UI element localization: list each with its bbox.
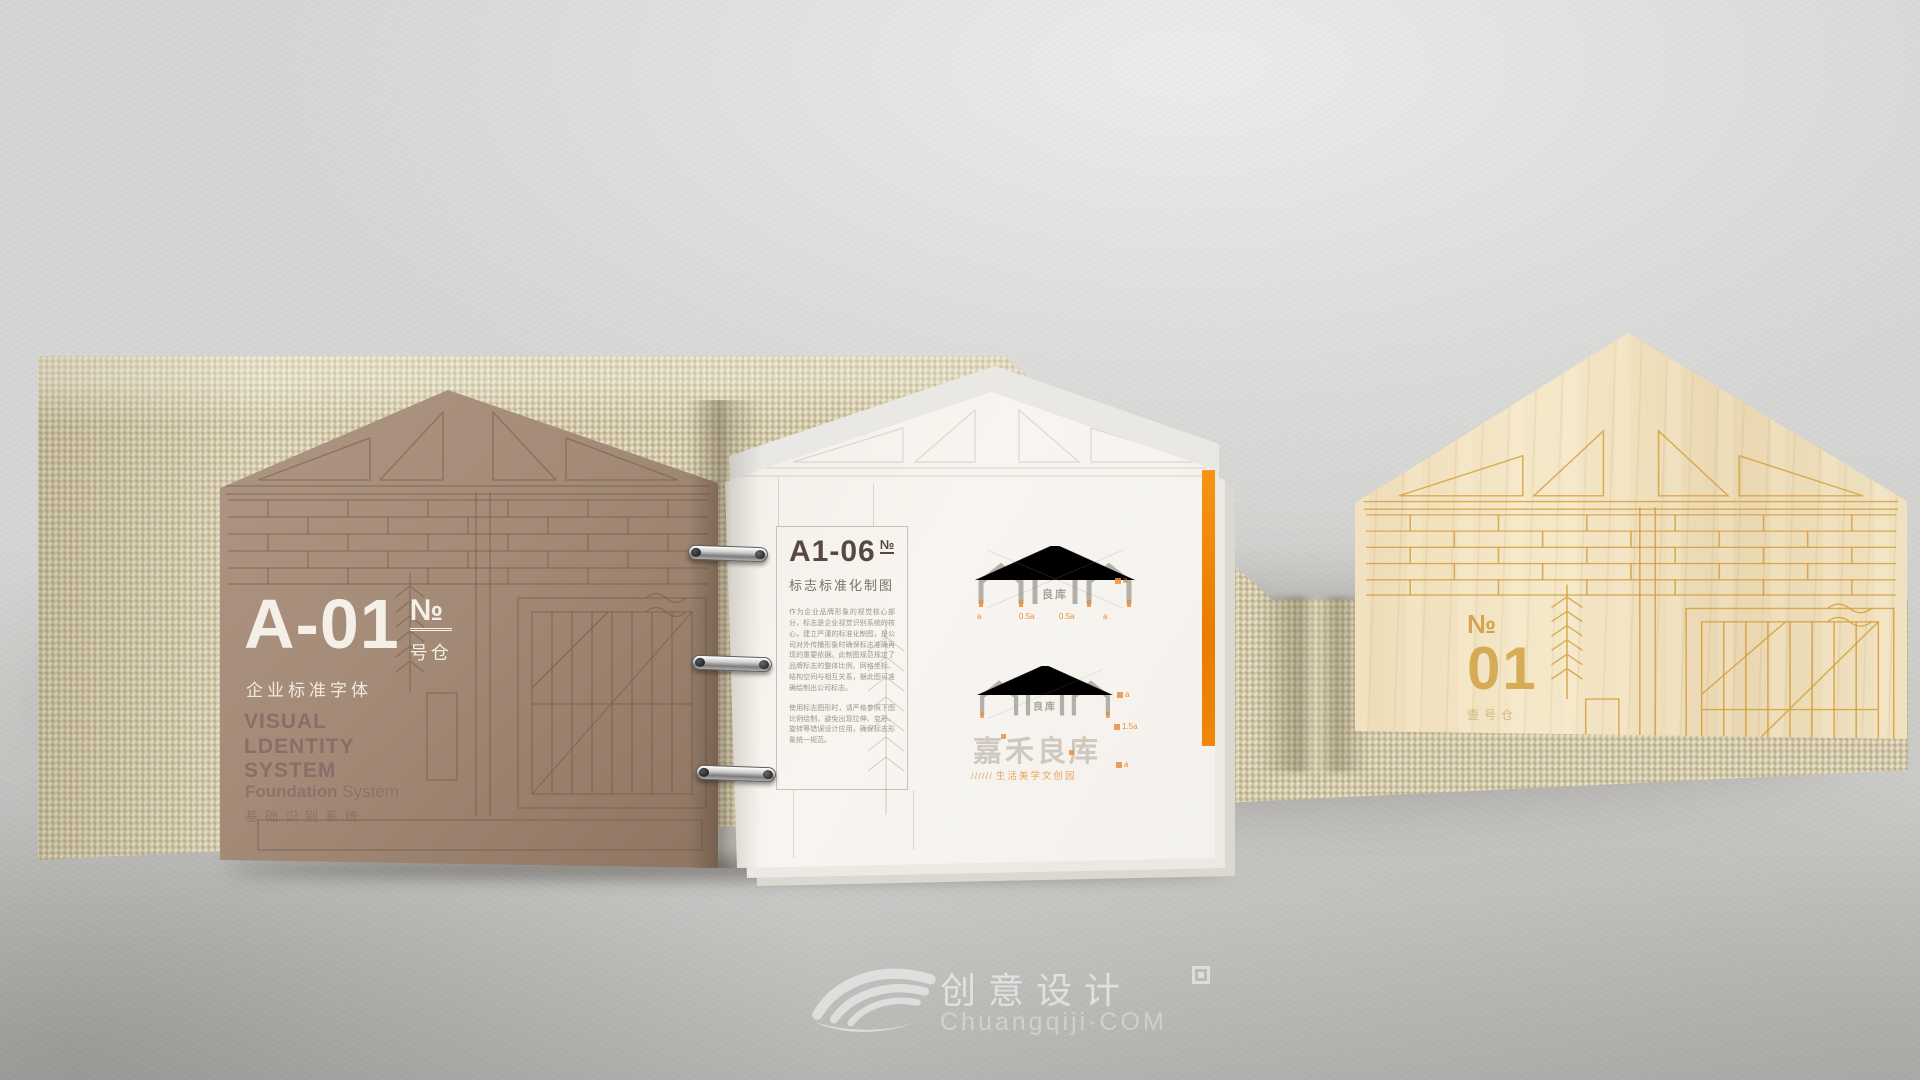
page-edge-accent-strip (1202, 470, 1216, 746)
dim-label: a (1116, 760, 1128, 769)
body-paragraph: 使用标志图形时，请严格参照下图比例绘制，避免出现拉伸、变形、旋转等错误设计应用，… (789, 704, 895, 747)
seal-accent (1001, 734, 1006, 739)
font-section-label: 企业标准字体 (246, 676, 372, 701)
vis-line: SYSTEM (244, 759, 355, 784)
vis-title: VISUAL LDENTITY SYSTEM (244, 710, 355, 784)
cover-number-block: № 01 壹号仓 (1467, 611, 1538, 721)
logo-grid-diagram: 良库 a 0.5a 0.5a a a (975, 546, 1145, 632)
page-code-sub: 号仓 (410, 639, 452, 665)
content-box: A1-06 № 标志标准化制图 作为企业品牌形象的视觉核心部分，标志是企业视觉识… (776, 526, 908, 790)
section-subtitle: 标志标准化制图 (789, 575, 895, 594)
page-code-block: A-01 № 号仓 (244, 592, 452, 665)
wood-cover-panel: № 01 壹号仓 (1355, 333, 1907, 753)
vis-line: LDENTITY (244, 735, 355, 760)
burlap-fold-shadow (1258, 596, 1368, 772)
binder-ring (692, 655, 772, 673)
binder-ring (696, 765, 776, 783)
watermark: 创意设计 Chuangqiji·COM (808, 950, 1248, 1062)
cover-no-label: № (1467, 611, 1538, 637)
binder-ring (688, 545, 768, 563)
section-code: A1-06 (789, 537, 876, 567)
mark-text: 良库 (1031, 586, 1079, 602)
guide-line (873, 484, 874, 526)
body-paragraph: 作为企业品牌形象的视觉核心部分，标志是企业视觉识别系统的核心，建立严谨的标准化制… (789, 608, 895, 695)
seal-accent (1069, 750, 1074, 755)
cover-sub-label: 壹号仓 (1467, 709, 1538, 721)
brand-book-mockup-scene: № 01 壹号仓 A-01 (0, 0, 1920, 1080)
warehouse-line-art-gold-icon (1355, 408, 1907, 868)
foundation-cn-label: 基础识别系统 (245, 806, 365, 825)
right-page: A1-06 № 标志标准化制图 作为企业品牌形象的视觉核心部分，标志是企业视觉识… (723, 390, 1217, 870)
dim-label: 0.5a (1059, 612, 1075, 621)
logo-lockup-diagram: 良库 嘉禾良库 //////生活美学文创园 a 1.5a a (971, 662, 1147, 804)
section-code-block: A1-06 № (789, 537, 895, 567)
guide-line (778, 478, 779, 526)
dim-label: 1.5a (1114, 722, 1138, 731)
left-page: A-01 № 号仓 企业标准字体 VISUAL LDENTITY SYSTEM … (218, 388, 718, 870)
dim-label: a (1115, 576, 1127, 585)
dim-label: 0.5a (1019, 612, 1035, 621)
no-mark: № (410, 596, 452, 631)
watermark-stamp-icon (1192, 966, 1210, 984)
swirl-logo-icon (808, 950, 938, 1045)
vis-line: VISUAL (244, 710, 355, 735)
dim-label: a (1103, 612, 1107, 621)
watermark-text-cn: 创意设计 (940, 962, 1132, 1014)
page-code: A-01 (244, 592, 400, 656)
brand-name-cn: 嘉禾良库 (973, 728, 1101, 770)
dim-label: a (977, 612, 981, 621)
no-mark: № (880, 537, 895, 554)
brand-tagline: //////生活美学文创园 (971, 768, 1076, 782)
dim-label: a (1117, 690, 1129, 699)
guide-line (793, 790, 794, 858)
watermark-text-en: Chuangqiji·COM (940, 1008, 1167, 1037)
foundation-label: Foundation System (245, 782, 399, 802)
cover-number: 01 (1467, 639, 1538, 699)
mark-text: 良库 (1023, 698, 1067, 713)
